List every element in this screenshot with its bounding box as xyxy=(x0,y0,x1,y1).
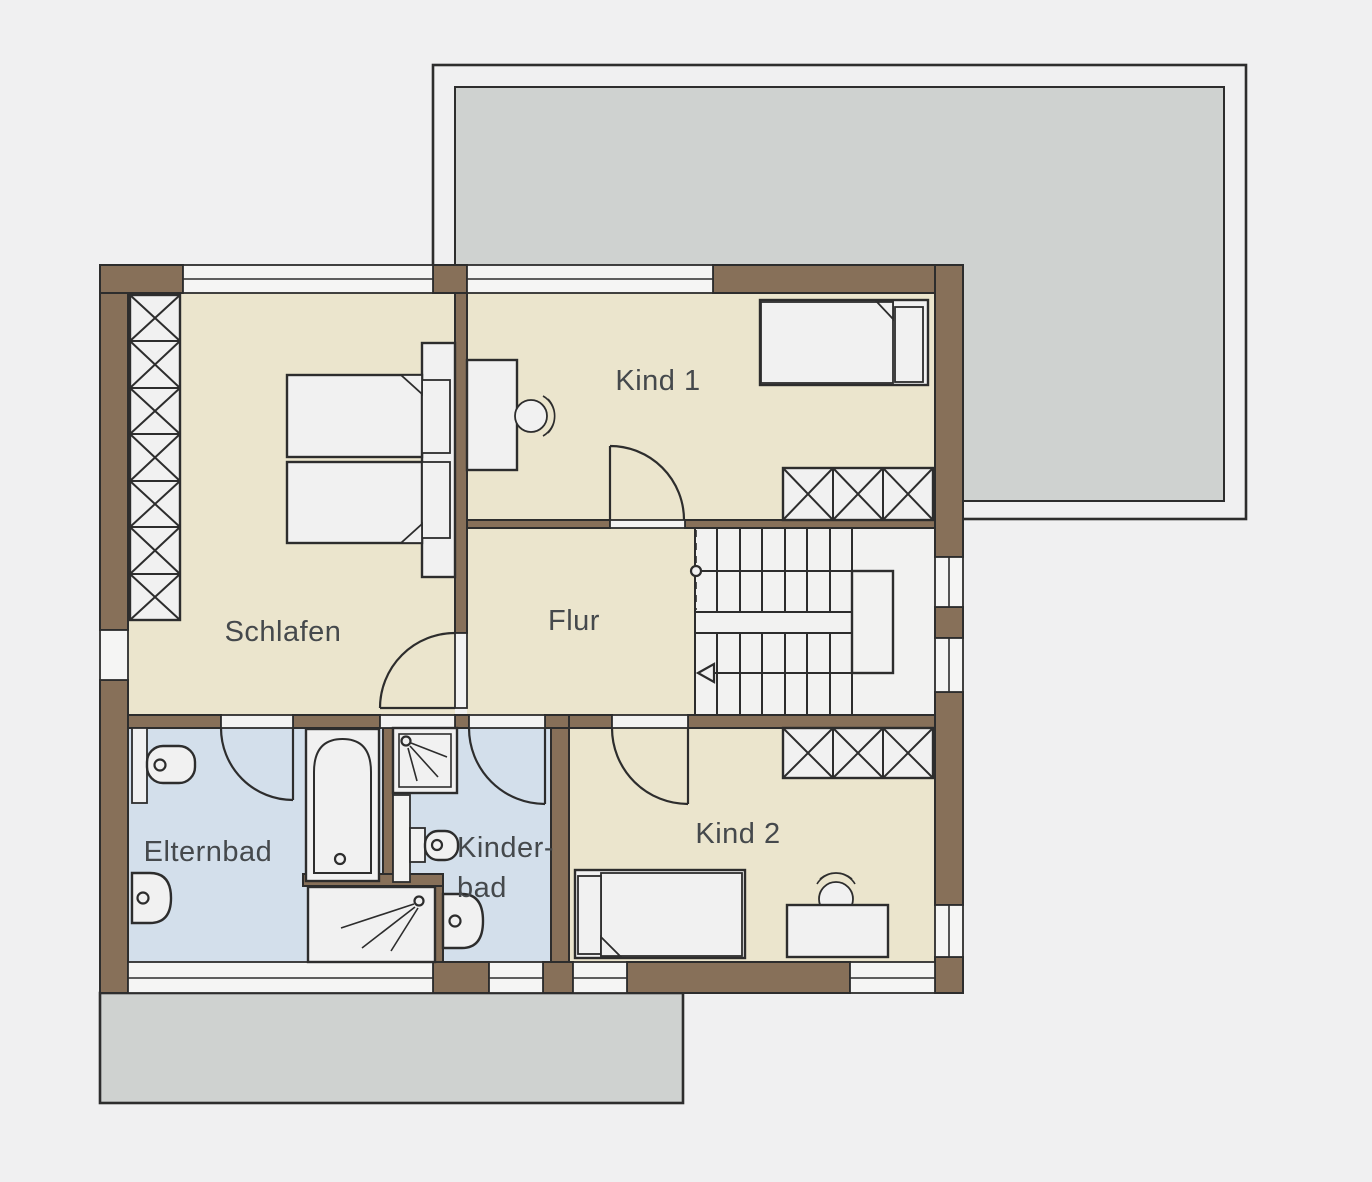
wall-bottom-a xyxy=(433,962,489,993)
single-bed-kind1 xyxy=(760,300,928,385)
window-stairs-east-1 xyxy=(935,557,963,607)
single-bed-kind2 xyxy=(575,870,745,958)
balcony xyxy=(100,993,683,1103)
floor-plan-svg: Schlafen Kind 1 Flur Kind 2 Elternbad Ki… xyxy=(0,0,1372,1182)
wall-bottom-b xyxy=(543,962,573,993)
wall-bath-north-b xyxy=(293,715,380,728)
wall-left-upper xyxy=(100,265,128,630)
label-kind2: Kind 2 xyxy=(695,818,780,850)
wall-kind2-north-a xyxy=(569,715,612,728)
wall-right-b xyxy=(935,607,963,638)
shower-kinderbad xyxy=(393,728,457,793)
window-kind2-east xyxy=(935,905,963,957)
schlafen-door-niche xyxy=(380,715,455,728)
label-schlafen: Schlafen xyxy=(225,616,342,648)
toilet-tank-elternbad xyxy=(132,728,147,803)
wall-right-d xyxy=(935,957,963,993)
kinderbad-door-threshold xyxy=(469,715,545,728)
staircase xyxy=(691,528,935,717)
halfwall-kinderbad xyxy=(393,795,410,882)
wall-schlafen-kind1 xyxy=(455,293,467,633)
wardrobe-kind1 xyxy=(783,468,933,520)
window-kind2-south-2 xyxy=(850,962,935,993)
wall-right-c xyxy=(935,692,963,905)
window-schlafen-north xyxy=(183,265,433,293)
label-kinderbad-line1: Kinder- xyxy=(457,832,554,864)
wall-bath-north-d xyxy=(545,715,569,728)
wall-bath-north-c xyxy=(455,715,469,728)
label-kind1: Kind 1 xyxy=(615,365,700,397)
window-kind2-south-1 xyxy=(573,962,627,993)
wall-top-a xyxy=(100,265,183,293)
wall-left-lower xyxy=(100,680,128,993)
label-flur: Flur xyxy=(548,605,600,637)
kind1-door-threshold xyxy=(610,520,685,528)
window-elternbad-south xyxy=(128,962,433,993)
window-stairs-east-2 xyxy=(935,638,963,692)
stair-newel-post xyxy=(691,566,701,576)
wall-bath-north-a xyxy=(128,715,221,728)
balcony-deck xyxy=(100,993,683,1103)
wardrobe-schlafen xyxy=(130,295,180,620)
desk-chair-kind1 xyxy=(515,400,547,432)
window-schlafen-west xyxy=(100,630,128,680)
wall-bottom-c xyxy=(627,962,850,993)
wall-right-a xyxy=(935,265,963,557)
wardrobe-kind2 xyxy=(783,728,933,778)
wall-stairs-kind1-b xyxy=(685,520,935,528)
shower-elternbad xyxy=(308,887,435,962)
floor-plan-canvas: Schlafen Kind 1 Flur Kind 2 Elternbad Ki… xyxy=(0,0,1372,1182)
toilet-tank-kinderbad xyxy=(410,828,425,862)
label-kinderbad-line2: bad xyxy=(457,872,507,904)
bathtub xyxy=(306,729,379,881)
window-kind1-north xyxy=(467,265,713,293)
wall-flur-kind1-a xyxy=(467,520,610,528)
elternbad-door-threshold xyxy=(221,715,293,728)
kind2-door-threshold xyxy=(612,715,688,728)
stair-well-railing xyxy=(852,571,893,673)
wall-tub-niche xyxy=(383,728,393,874)
wall-top-b xyxy=(433,265,467,293)
wall-kind2-north-b xyxy=(688,715,935,728)
wall-top-c xyxy=(713,265,963,293)
window-kinderbad-south xyxy=(489,962,543,993)
schlafen-door-threshold xyxy=(455,633,467,708)
stairwell-floor xyxy=(695,528,935,717)
label-elternbad: Elternbad xyxy=(144,836,273,868)
